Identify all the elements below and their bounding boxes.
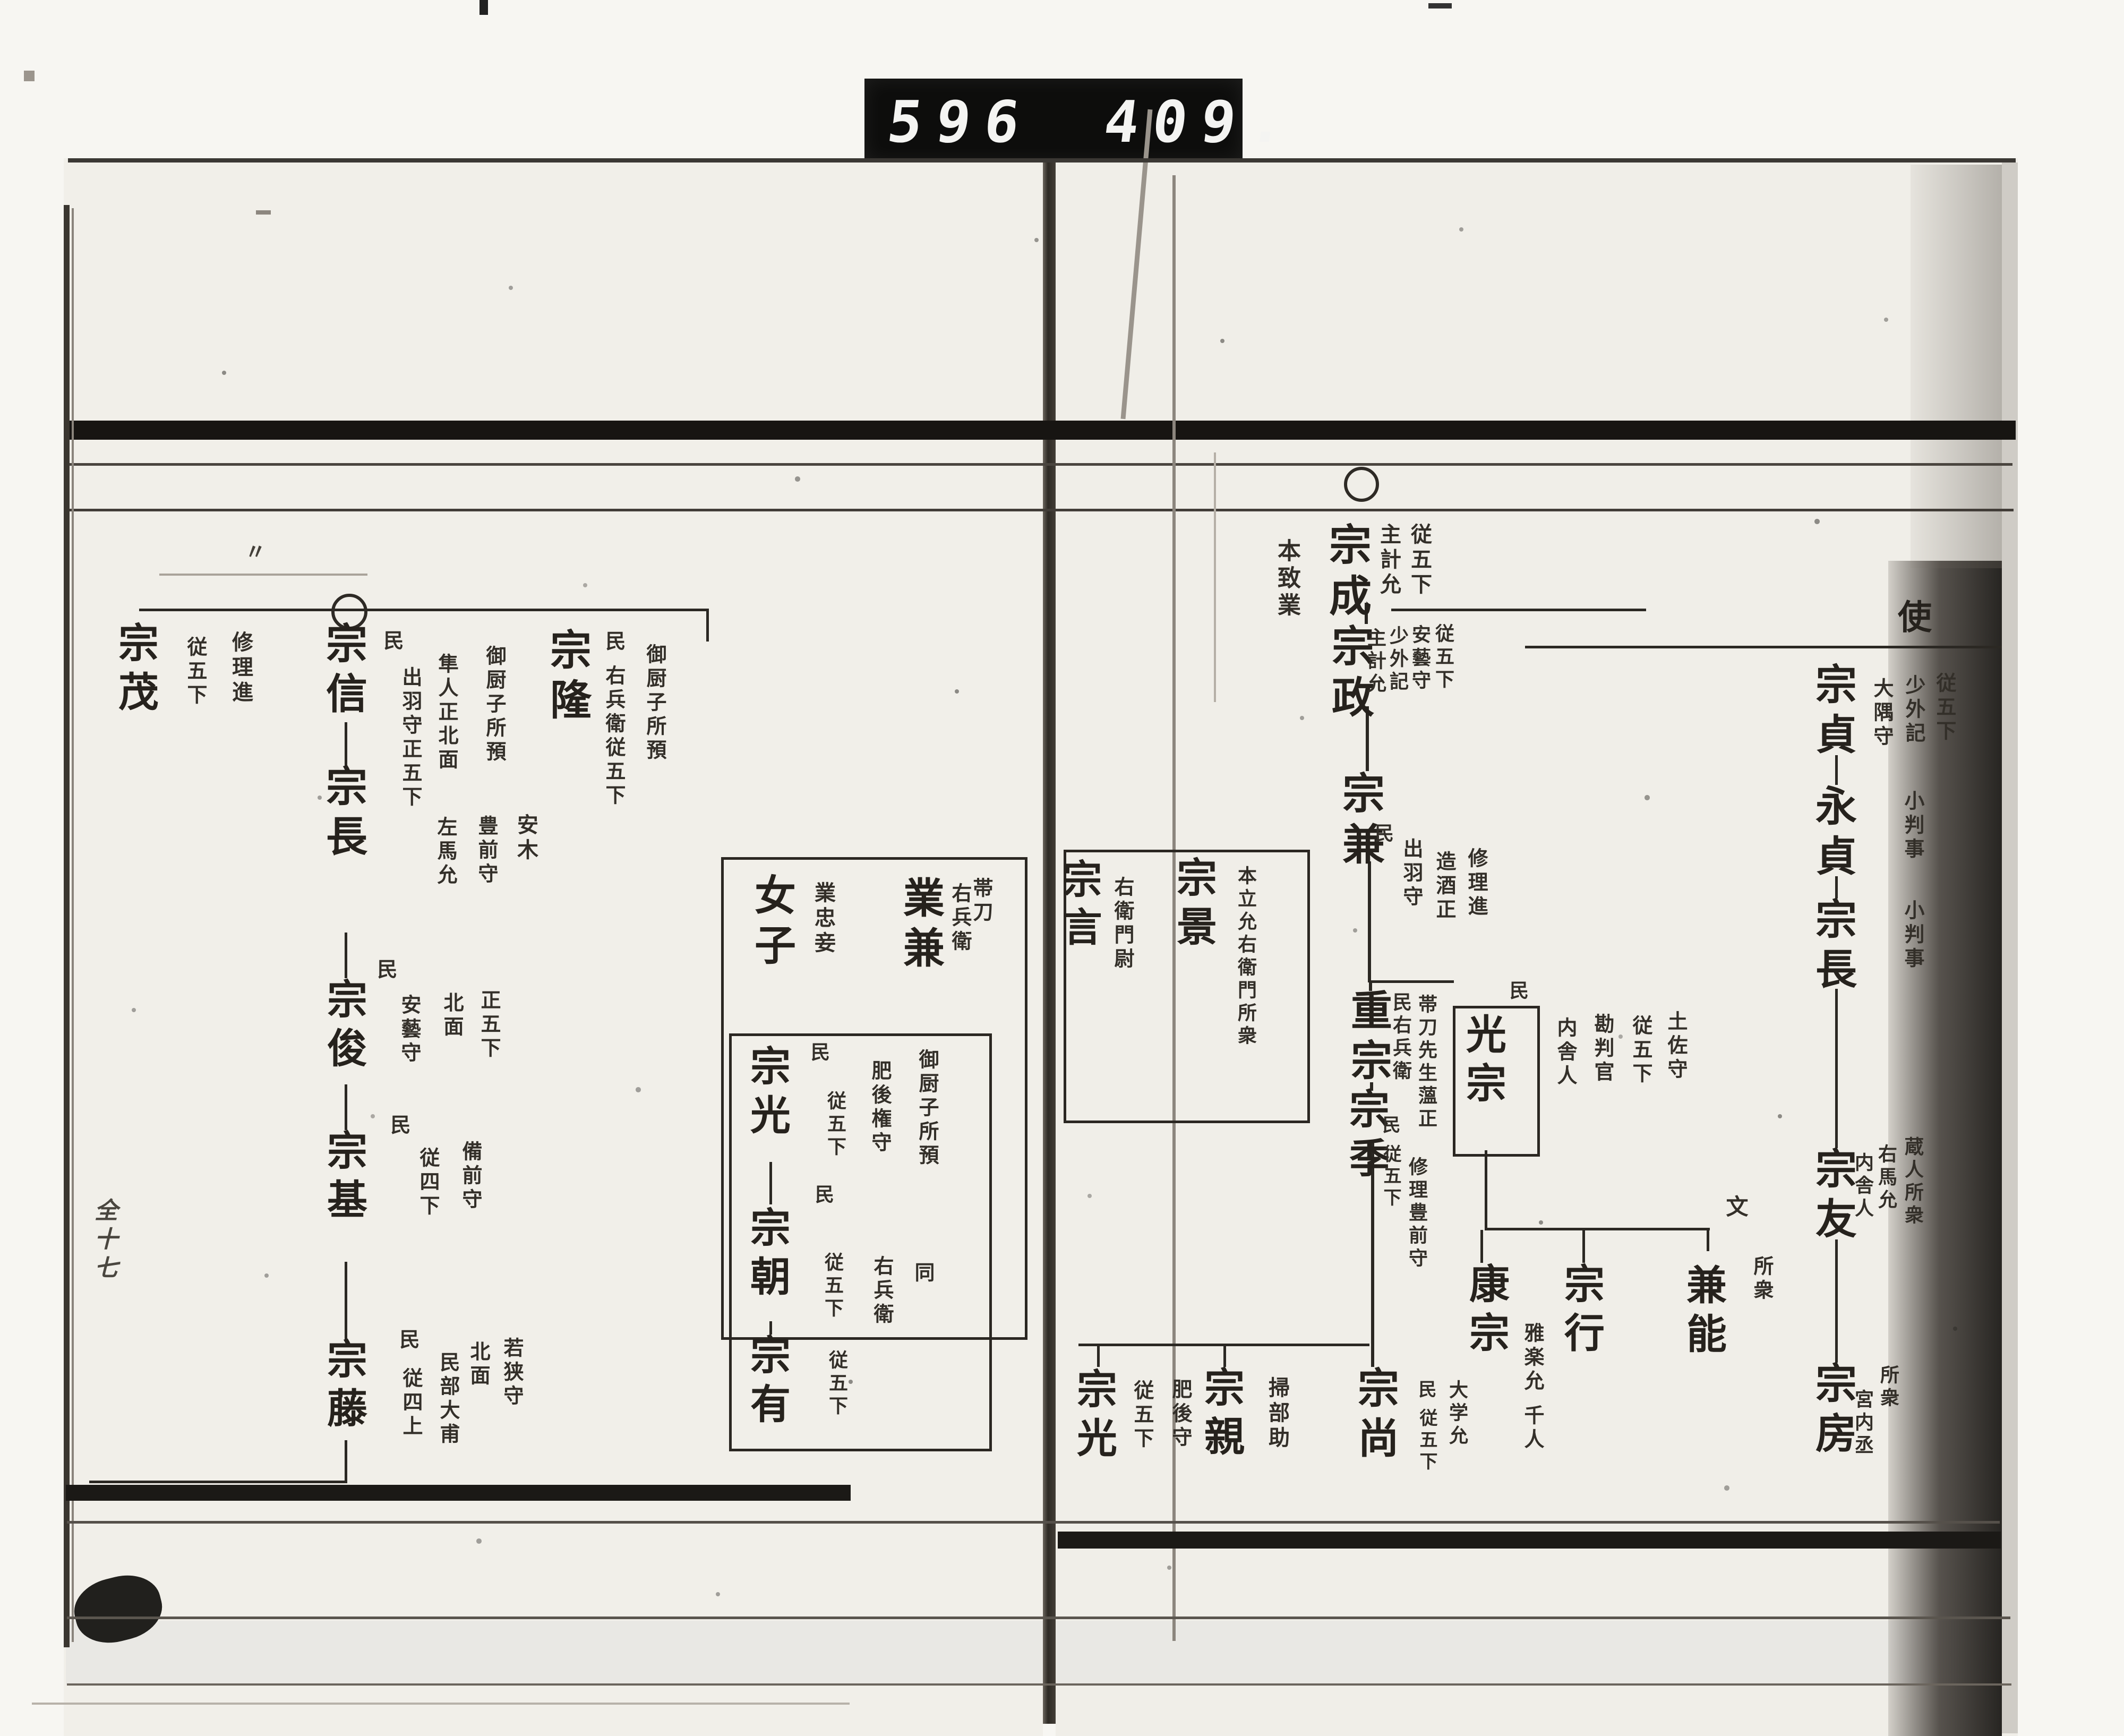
page-right-outer-edge [2002, 163, 2018, 1733]
conn-r-junction [1370, 980, 1454, 983]
left-edge-line [64, 205, 70, 1647]
name-somo: 宗茂 [114, 622, 155, 720]
annot-mitsumune-2: 土佐守 [1665, 1011, 1685, 1082]
counter-left-digits: 596 [884, 89, 1037, 156]
annot-somo-2: 修理進 [230, 631, 251, 706]
annot-munefuji-1: 民 [397, 1329, 417, 1353]
conn-r-3 [1368, 861, 1371, 982]
annot-munemasa-4: 従五下 [1434, 623, 1453, 692]
name-mitsumune: 光宗 [1462, 1013, 1502, 1111]
book-top-edge [68, 158, 2016, 163]
annot-nagasada-1: 小判事 [1902, 790, 1922, 862]
annot-munetaka-2: 右兵衛従五下 [603, 665, 623, 808]
annot-munekoto-1: 右衛門尉 [1112, 876, 1132, 972]
annot-munemitsu-l-4: 肥後権守 [869, 1060, 889, 1156]
bottom-rule-2 [67, 1617, 2010, 1619]
scan-noise-speckles [0, 0, 2, 2]
scan-artifact-2 [1428, 3, 1452, 8]
gen-line-right-b [1525, 646, 2002, 648]
annot-munetaka-3: 御厨子所預 [644, 644, 664, 763]
name-munefusa: 宗房 [1812, 1362, 1853, 1461]
annot-munemitsu-r2-1: 肥後守 [1170, 1379, 1190, 1450]
annot-munesada-3: 従五下 [1934, 672, 1954, 744]
counter-right-digits: 409. [1100, 89, 1301, 156]
generation-marker-right [1344, 467, 1379, 502]
annot-munetomo-l-1: 同 [912, 1262, 932, 1286]
annot-munetomo-l-3: 従五下 [823, 1252, 842, 1321]
name-munetoshi: 宗俊 [323, 978, 363, 1076]
annot-munechika-1: 掃部助 [1266, 1376, 1288, 1451]
annot-munemoto-3: 備前守 [460, 1141, 480, 1212]
scan-artifact-4 [256, 210, 271, 215]
annot-munesue-1: 民 [1380, 1115, 1398, 1137]
conn-l-1 [345, 722, 347, 766]
conn-l-3 [345, 1084, 347, 1130]
conn-sada-4 [1835, 1239, 1838, 1363]
conn-l-4 [345, 1262, 347, 1341]
annot-munemoto-2: 従四下 [417, 1147, 438, 1219]
heavy-rule [66, 421, 2016, 440]
bottom-rule-3 [67, 1683, 2011, 1686]
name-yasumune: 康宗 [1465, 1263, 1505, 1361]
header-rule-2 [69, 509, 2014, 511]
book-gutter-shadow [1043, 163, 1056, 1724]
annot-munetomo-r-2: 右馬允 [1877, 1144, 1896, 1212]
annot-munesada-1: 大隅守 [1871, 678, 1891, 749]
bottom-band-left [66, 1485, 851, 1501]
conn-sada-3 [1835, 989, 1838, 1148]
name-munemitsu-r2: 宗光 [1073, 1368, 1113, 1466]
annot-munemasa-3: 安藝守 [1410, 625, 1429, 693]
annot-munefuji-3: 民部大甫 [438, 1352, 458, 1447]
annot-munehisa-2: 従五下 [1417, 1408, 1435, 1474]
annot-munenobu-1: 民 [381, 630, 401, 654]
name-nagasada: 永貞 [1812, 784, 1853, 884]
margin-sheet-number: 全十七 [92, 1198, 115, 1284]
annot-joshi-1: 業忠妾 [812, 882, 834, 956]
annot-tachihaki: 帯刀先生薀正 [1417, 994, 1436, 1131]
annot-munesada-2: 少外記 [1903, 674, 1923, 746]
name-shigemune: 重宗 [1347, 989, 1389, 1089]
annot-munefuji-2: 従四上 [400, 1367, 421, 1439]
scan-artifact-3 [24, 71, 35, 81]
annot-munehisa-3: 大学允 [1448, 1380, 1467, 1448]
gen-line-right-a [1391, 609, 1646, 611]
annot-shigemune-1: 民右兵衛 [1391, 992, 1410, 1083]
annot-munetoshi-1: 民 [375, 959, 395, 982]
annot-munemoto-1: 民 [388, 1114, 408, 1138]
annot-kaneyoshi-1: 文 [1724, 1195, 1746, 1221]
annot-munenobu-2: 出羽守正五下 [400, 666, 420, 810]
name-munari: 宗有 [746, 1334, 786, 1432]
annot-munesue-3: 修理豊前守 [1407, 1157, 1426, 1271]
annot-somo-1: 従五下 [185, 636, 205, 708]
annot-munefuji-4: 北面 [468, 1341, 488, 1389]
name-munesada: 宗貞 [1812, 663, 1853, 763]
annot-narikane-2: 帯刀 [971, 877, 991, 925]
name-munemasa: 宗政 [1327, 624, 1370, 726]
annot-munenaga-l-2: 御厨子所預 [484, 645, 504, 765]
annot-munefusa-2: 所衆 [1879, 1365, 1898, 1410]
drop-muneyuki [1582, 1230, 1585, 1263]
annot-munemitsu-r2-2: 従五下 [1132, 1380, 1152, 1451]
conn-l-2 [345, 933, 347, 978]
ditto-mark: 〃 [243, 541, 264, 562]
name-munekage: 宗景 [1172, 857, 1213, 954]
drop-munemitsu-r2 [1097, 1346, 1100, 1367]
annot-munemasa-2: 少外記 [1388, 626, 1407, 694]
name-muneyuki: 宗行 [1560, 1263, 1600, 1361]
annot-munari-1: 従五下 [827, 1350, 846, 1418]
name-munetomo-r: 宗友 [1812, 1147, 1853, 1247]
annot-munetomo-r-1: 内舎人 [1853, 1152, 1872, 1221]
annot-tsukai: 使 [1895, 599, 1929, 642]
name-munemitsu-l: 宗光 [746, 1045, 786, 1143]
annot-narikane-1: 右兵衛 [949, 883, 970, 954]
name-munenaga-r: 宗長 [1812, 897, 1853, 997]
annot-munesue-2: 従五下 [1381, 1144, 1399, 1210]
annot-munemasa-1: 主計允 [1366, 628, 1385, 696]
annot-munefusa-1: 宮内丞 [1853, 1389, 1872, 1458]
page-bottom-strip [66, 1621, 2011, 1684]
annot-munemitsu-l-3: 民 [813, 1184, 833, 1207]
annot-munekage-1: 本立允右衛門所衆 [1236, 866, 1255, 1048]
name-munesue: 宗季 [1345, 1088, 1385, 1186]
annot-munenaga-l-3: 豊前守 [476, 815, 496, 887]
annot-mitsumune-5: 内舎人 [1555, 1017, 1575, 1089]
annot-munetoshi-2: 安藝守 [399, 994, 419, 1066]
annot-mitsumune-3: 従五下 [1630, 1015, 1650, 1087]
bottom-thin-rule [67, 1521, 2000, 1524]
annot-mitsumune-1: 民 [1508, 980, 1527, 1003]
annot-munekane-1: 民 [1373, 823, 1392, 846]
annot-kaneyoshi-2: 所衆 [1751, 1255, 1771, 1303]
name-munenaga-l: 宗長 [322, 765, 364, 865]
annot-munefuji-5: 若狭守 [501, 1337, 521, 1409]
annot-munetomo-l-2: 右兵衛 [871, 1255, 892, 1327]
annot-honchigyo: 本致業 [1275, 538, 1298, 620]
name-munetaka: 宗隆 [546, 628, 588, 728]
gen-line-left [139, 609, 708, 611]
name-munekane: 宗兼 [1338, 771, 1381, 873]
conn-l-5 [345, 1440, 347, 1483]
name-munekoto: 宗言 [1059, 859, 1098, 954]
name-kaneyoshi: 兼能 [1682, 1264, 1723, 1362]
bottom-band-right [1058, 1532, 2001, 1549]
annot-munetaka-1: 民 [603, 630, 623, 654]
annot-munekane-4: 修理進 [1466, 848, 1486, 919]
name-narikane: 業兼 [900, 876, 941, 976]
branch-corner [1707, 1228, 1709, 1251]
right-edge-scan-shadow-top [1911, 165, 2002, 568]
annot-munemitsu-l-5: 御厨子所預 [917, 1049, 937, 1168]
annot-munenaga-l-1: 隼人正北面 [436, 653, 456, 773]
name-joshi: 女子 [751, 874, 792, 973]
name-munenobu: 宗信 [322, 622, 364, 722]
annot-munenari-1: 主計允 [1378, 523, 1399, 598]
annot-yasumune-2: 千人 [1522, 1405, 1542, 1452]
scanned-genealogy-page: 596 409. 全十七宗茂従五下修理進〃宗信民出羽守正五下宗長隼人正北面御厨子… [0, 0, 2124, 1736]
annot-munemitsu-l-1: 民 [809, 1042, 828, 1065]
microfilm-frame-counter: 596 409. [864, 79, 1243, 163]
name-munetomo-l: 宗朝 [746, 1207, 786, 1304]
drop-munechika [1223, 1346, 1226, 1367]
name-munenari: 宗成 [1325, 523, 1367, 625]
annot-munemitsu-l-2: 従五下 [826, 1091, 845, 1159]
annot-munekane-2: 出羽守 [1401, 838, 1421, 910]
annot-munenari-2: 従五下 [1409, 523, 1430, 598]
conn-l-bottom [89, 1481, 347, 1483]
name-munemoto: 宗基 [323, 1130, 363, 1227]
header-rule-1 [69, 463, 2012, 466]
annot-munenaga-r-1: 小判事 [1902, 900, 1922, 971]
annot-mitsumune-4: 勘判官 [1592, 1013, 1612, 1085]
annot-yasumune-1: 雅楽允 [1522, 1322, 1542, 1394]
scan-artifact-1 [479, 0, 488, 15]
branch-line-mitsumune [1485, 1228, 1710, 1230]
gutter-crease [1214, 452, 1216, 702]
bottom-streak [32, 1703, 850, 1705]
gen-line-left-tick [706, 609, 709, 642]
annot-munekane-3: 造酒正 [1434, 851, 1454, 922]
annot-yasuki: 安木 [515, 814, 536, 863]
name-munechika: 宗親 [1200, 1366, 1240, 1464]
annot-munehisa-1: 民 [1416, 1380, 1434, 1401]
name-munefuji: 宗藤 [323, 1338, 363, 1436]
drop-yasumune [1480, 1230, 1483, 1263]
faint-rule-left [159, 574, 367, 576]
annot-munetomo-r-3: 蔵人所衆 [1903, 1136, 1922, 1228]
annot-munetoshi-3: 北面 [441, 992, 461, 1040]
left-edge-line-2 [72, 208, 74, 1642]
annot-munetoshi-4: 正五下 [478, 989, 499, 1061]
name-munehisa: 宗尚 [1354, 1366, 1395, 1466]
annot-munenaga-l-4: 左馬允 [435, 816, 455, 888]
conn-mitsumune-v [1485, 1150, 1487, 1230]
